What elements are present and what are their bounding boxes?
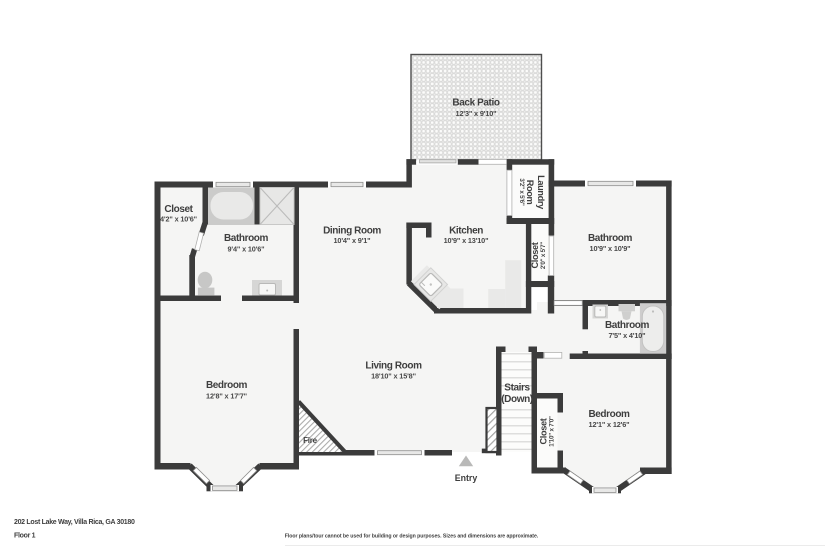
svg-text:12'8" x 17'7": 12'8" x 17'7" (206, 392, 247, 401)
svg-text:(Down): (Down) (501, 394, 533, 405)
svg-text:Floor plans/tour cannot be use: Floor plans/tour cannot be used for buil… (285, 534, 539, 540)
svg-text:2'0" x 5'7": 2'0" x 5'7" (540, 242, 547, 270)
svg-text:Back Patio: Back Patio (452, 98, 499, 109)
svg-text:Dining Room: Dining Room (323, 226, 381, 237)
svg-text:18'10" x 15'8": 18'10" x 15'8" (371, 372, 416, 381)
svg-text:Bedroom: Bedroom (588, 409, 630, 420)
svg-text:Closet: Closet (164, 204, 193, 215)
svg-text:202 Lost Lake Way, Villa Rica,: 202 Lost Lake Way, Villa Rica, GA 30180 (14, 519, 135, 526)
svg-text:12'3" x 9'10": 12'3" x 9'10" (456, 109, 497, 118)
svg-text:9'4" x 10'6": 9'4" x 10'6" (228, 245, 265, 254)
svg-text:Bedroom: Bedroom (206, 380, 248, 391)
svg-text:1'10" x 7'0": 1'10" x 7'0" (549, 416, 556, 447)
svg-text:Kitchen: Kitchen (449, 226, 483, 237)
svg-text:3'2" x 5'6": 3'2" x 5'6" (518, 178, 525, 206)
svg-text:Bathroom: Bathroom (588, 233, 633, 244)
svg-text:10'4" x 9'1": 10'4" x 9'1" (334, 236, 371, 245)
svg-text:Bathroom: Bathroom (224, 233, 269, 244)
svg-text:Bathroom: Bathroom (605, 320, 650, 331)
svg-text:10'9" x 13'10": 10'9" x 13'10" (444, 236, 489, 245)
svg-text:Floor 1: Floor 1 (14, 533, 36, 540)
svg-text:4'2" x 10'6": 4'2" x 10'6" (160, 215, 197, 224)
svg-text:Closet: Closet (530, 242, 540, 268)
svg-text:12'1" x 12'6": 12'1" x 12'6" (589, 420, 630, 429)
svg-text:Stairs: Stairs (504, 383, 530, 394)
svg-text:10'9" x 10'9": 10'9" x 10'9" (590, 244, 631, 253)
svg-text:7'5" x 4'10": 7'5" x 4'10" (609, 331, 646, 340)
svg-text:Fire: Fire (303, 436, 318, 445)
svg-text:Room: Room (525, 180, 535, 205)
svg-text:Laundry: Laundry (536, 175, 546, 210)
svg-text:Closet: Closet (539, 418, 549, 444)
svg-text:Entry: Entry (455, 473, 478, 483)
svg-text:Living Room: Living Room (365, 361, 422, 372)
